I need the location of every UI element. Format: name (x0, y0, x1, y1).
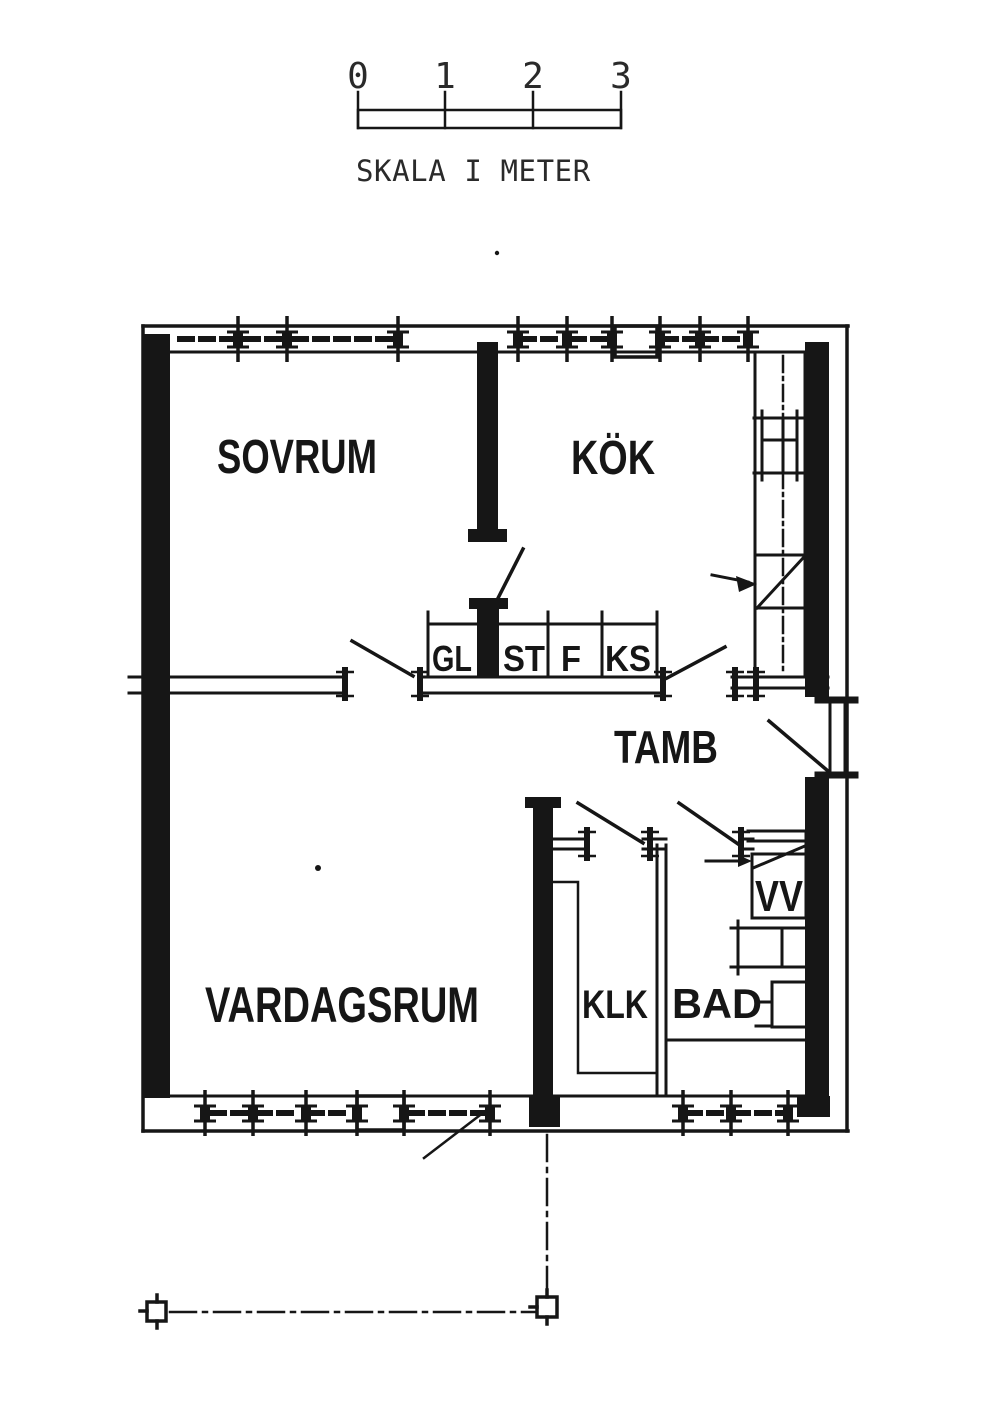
kitchen-cabinets: GL ST F KS (428, 598, 657, 679)
section-lines (140, 1135, 557, 1328)
cabinet-label-st: ST (503, 638, 545, 679)
scale-bar: 0 1 2 3 SKALA I METER (347, 56, 632, 188)
door-swing-kok-sovrum (494, 549, 523, 606)
wall-klk-bad (657, 845, 666, 1096)
door-swing-kok-tamb (667, 647, 725, 678)
kitchen-sink (754, 411, 805, 480)
room-label-sovrum: SOVRUM (217, 431, 377, 484)
window-leader-line (424, 1109, 488, 1158)
room-label-bad: BAD (672, 980, 762, 1027)
cabinet-label-f: F (561, 638, 581, 679)
room-label-vardagsrum: VARDAGSRUM (205, 977, 479, 1033)
fixture-label-vv: VV (755, 872, 804, 921)
vv-closet: VV (706, 831, 806, 921)
windows-bottom-wall (194, 1090, 799, 1158)
scale-bar-ruler (358, 92, 621, 128)
window-bottom (357, 1096, 404, 1130)
room-label-kok: KÖK (571, 432, 655, 485)
toilet (756, 982, 808, 1027)
counter-shelves (756, 555, 805, 608)
floor-plan-drawing: 0 1 2 3 SKALA I METER (0, 0, 991, 1403)
kitchen-counter (712, 352, 805, 677)
wall-sovrum-vardagsrum (129, 677, 828, 693)
entrance-door (769, 700, 855, 775)
wall-vardagsrum-klk (525, 797, 561, 1096)
door-swing-entrance (769, 721, 828, 771)
floor-plan-sheet: 0 1 2 3 SKALA I METER (0, 0, 991, 1403)
washbasin (731, 921, 815, 974)
room-label-klk: KLK (582, 983, 648, 1027)
door-swing-bad (679, 803, 741, 846)
windows-top-wall (180, 316, 759, 362)
wall-foot-klk (529, 1096, 560, 1127)
section-marker-left (140, 1295, 166, 1328)
wall-right-upper (805, 342, 829, 697)
wall-left (143, 334, 170, 1098)
cabinet-wall-stub (477, 606, 499, 677)
doors (352, 549, 855, 846)
cabinet-label-gl: GL (432, 638, 472, 679)
wall-sovrum-kok (468, 342, 507, 542)
section-marker-right (530, 1290, 557, 1324)
klk-wardrobe (553, 882, 657, 1073)
scale-caption: SKALA I METER (356, 154, 591, 188)
cabinet-label-ks: KS (605, 638, 651, 679)
speck (315, 865, 321, 871)
speck (495, 251, 499, 255)
wall-corner-bottom-right (797, 1096, 830, 1117)
counter-arrow (712, 575, 757, 592)
room-label-tamb: TAMB (614, 721, 718, 773)
door-swing-sovrum (352, 641, 413, 676)
